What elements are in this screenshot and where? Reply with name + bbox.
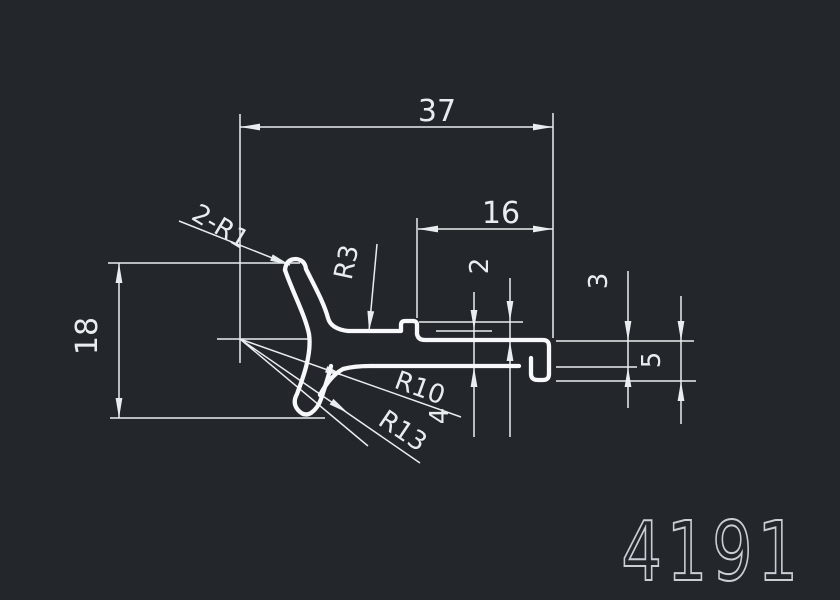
dim-37-label: 37 [418,94,456,129]
dim-16-label: 16 [482,196,520,231]
dim-3-label: 3 [584,273,614,290]
cad-drawing-canvas: 37 16 18 2 3 4 5 2-R1 R3 R10 R13 4191 [0,0,840,600]
cad-drawing: 37 16 18 2 3 4 5 2-R1 R3 R10 R13 4191 [0,0,840,600]
dim-4-label: 4 [425,408,455,425]
dim-5-label: 5 [637,352,667,369]
dim-18-label: 18 [70,317,105,355]
part-number-label: 4191 [621,505,802,600]
dim-2-label: 2 [465,258,495,275]
